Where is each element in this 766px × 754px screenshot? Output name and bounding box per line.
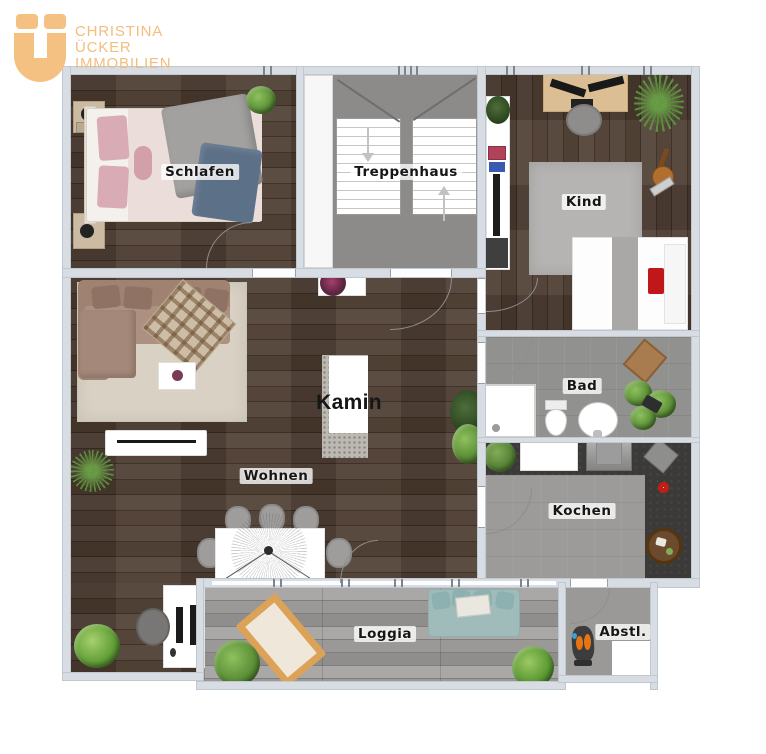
mouse	[170, 648, 176, 657]
wall-bad-kochen	[477, 437, 700, 443]
tv-stand	[486, 238, 508, 268]
room-label-treppenhaus: Treppenhaus	[350, 164, 462, 180]
logo: CHRISTINA ÜCKER IMMOBILIEN	[0, 0, 240, 90]
window-tick	[643, 66, 645, 75]
poster	[488, 146, 506, 160]
door-opening-schlafen	[252, 269, 296, 277]
tv-lowboard	[105, 430, 207, 456]
window-tick	[506, 66, 508, 75]
logo-u-notch	[34, 33, 47, 58]
room-label-abstellraum: Abstl.	[595, 624, 650, 640]
window-tick	[263, 66, 265, 75]
flame-blue	[572, 633, 577, 639]
wall-kind-bad	[477, 330, 700, 337]
blanket-blue	[191, 142, 263, 224]
palm-plant	[70, 450, 114, 492]
window-tick	[451, 579, 453, 587]
door-opening-wohnen	[390, 269, 452, 277]
door-opening-kind	[478, 278, 485, 314]
window-tick	[650, 66, 652, 75]
pillow-roll	[134, 146, 152, 180]
kettle	[658, 482, 669, 493]
wall-wohnen-loggia	[196, 578, 204, 681]
room-label-schlafen: Schlafen	[161, 164, 239, 180]
pillow	[455, 594, 491, 617]
wall-right	[691, 66, 700, 588]
cushion	[495, 591, 515, 611]
wall-abstellraum-bottom	[558, 675, 658, 683]
logo-umlaut-dot	[44, 14, 66, 29]
red-pillow	[648, 268, 664, 294]
cushion	[123, 286, 152, 310]
wall-abstellraum-left	[558, 582, 566, 683]
stair-arrow-up	[443, 195, 445, 221]
window-tick	[273, 579, 275, 587]
desk-chair	[136, 608, 170, 646]
door-opening-bad	[478, 342, 485, 384]
logo-line2: ÜCKER	[75, 40, 171, 56]
stair-arrow-down-head	[362, 153, 374, 162]
room-label-bad: Bad	[563, 378, 602, 394]
stove-base	[574, 660, 592, 666]
basket-item	[666, 548, 673, 555]
flame	[576, 636, 583, 650]
kitchen-sink-counter	[520, 440, 578, 471]
table-decor	[172, 370, 183, 381]
stove-hood	[596, 441, 622, 465]
plant	[486, 96, 510, 124]
flame	[584, 634, 591, 650]
door-opening-abstellraum	[570, 579, 608, 587]
window-tick	[410, 66, 412, 75]
window-tick	[398, 66, 400, 75]
tv	[117, 440, 196, 443]
window-tick	[270, 66, 272, 75]
lamp	[80, 224, 94, 238]
plant	[246, 86, 276, 114]
logo-text: CHRISTINA ÜCKER IMMOBILIEN	[75, 24, 171, 72]
lamp-center	[264, 546, 273, 555]
room-label-loggia: Loggia	[354, 626, 416, 642]
abstellraum-notch	[612, 641, 650, 675]
logo-line1: CHRISTINA	[75, 24, 171, 40]
wall-schlafen-treppenhaus	[296, 66, 304, 278]
wall-left	[62, 66, 71, 681]
logo-line3: IMMOBILIEN	[75, 56, 171, 72]
bush	[214, 640, 260, 686]
wardrobe	[304, 75, 333, 268]
monitor	[176, 607, 183, 643]
wall-abstellraum-right	[650, 582, 658, 690]
room-label-wohnen: Wohnen	[240, 468, 313, 484]
window-tick	[513, 66, 515, 75]
logo-umlaut-dot	[16, 14, 38, 29]
tv	[493, 174, 500, 236]
cushion	[91, 285, 121, 310]
sofa-chaise	[80, 310, 136, 378]
window-tick	[394, 579, 396, 587]
door-opening-kochen	[478, 486, 485, 528]
window-tick	[588, 66, 590, 75]
wall-loggia-bottom	[196, 681, 566, 690]
wall-bottom-left	[62, 672, 204, 681]
palm-plant	[634, 74, 684, 132]
window-tick	[527, 579, 529, 587]
room-label-kochen: Kochen	[549, 503, 616, 519]
room-label-kamin: Kamin	[312, 391, 386, 415]
window-tick	[404, 66, 406, 75]
plant	[74, 624, 120, 668]
floor-plan: Schlafen Treppenhaus Kind Bad Kochen Kam…	[0, 0, 766, 754]
room-label-kind: Kind	[562, 194, 606, 210]
window-tick	[520, 579, 522, 587]
window-tick	[280, 579, 282, 587]
cushion	[431, 591, 451, 610]
desk-chair	[566, 104, 602, 136]
poster	[489, 162, 505, 172]
pillow	[97, 115, 130, 161]
window-tick	[458, 579, 460, 587]
pillow	[97, 165, 129, 209]
window-tick	[581, 66, 583, 75]
bed-runner	[612, 237, 638, 330]
window-tick	[401, 579, 403, 587]
stair-arrow-up-head	[438, 186, 450, 195]
bed-pillow	[664, 244, 686, 324]
shower-drain	[492, 424, 500, 432]
glass-door-loggia	[212, 581, 556, 585]
stair-arrow-down	[367, 127, 369, 153]
plant	[484, 440, 516, 472]
stove-heater	[571, 625, 595, 662]
window-tick	[416, 66, 418, 75]
